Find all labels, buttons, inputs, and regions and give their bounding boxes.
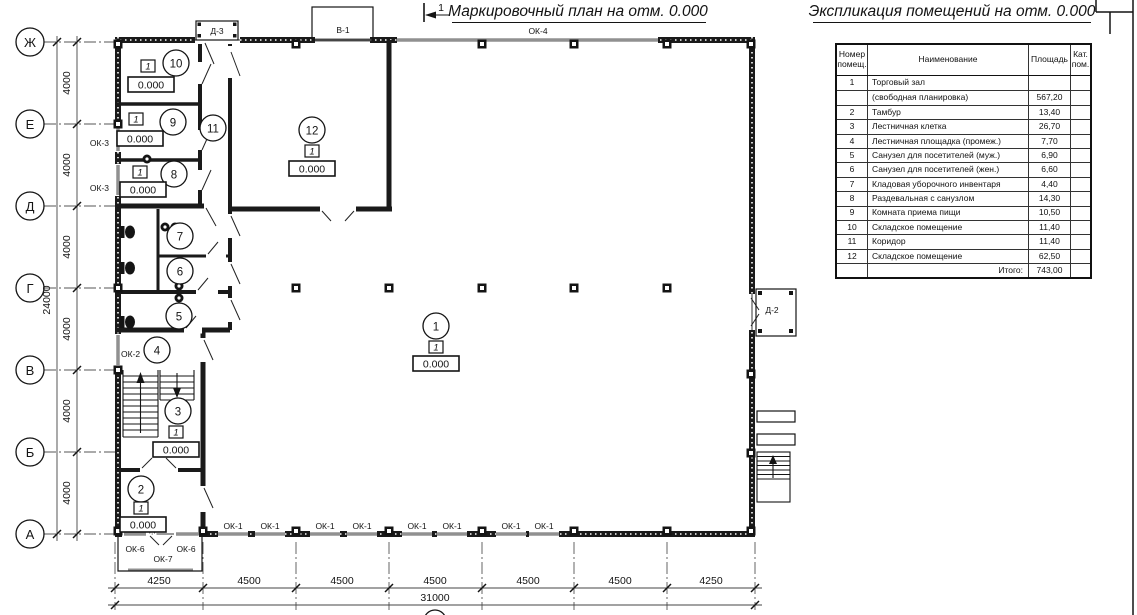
cell-name: Тамбур <box>867 106 1028 119</box>
room-marker-6: 6 <box>167 258 193 284</box>
cell-name: Коридор <box>867 235 1028 248</box>
cell-name: Санузел для посетителей (муж.) <box>867 149 1028 162</box>
cell-area: 6,60 <box>1028 163 1070 176</box>
cell-area: 11,40 <box>1028 221 1070 234</box>
header-name: Наименование <box>867 45 1028 75</box>
header-room-number: Номер помещ. <box>837 45 867 75</box>
table-row: 4 Лестничная площадка (промеж.) 7,70 <box>837 134 1090 148</box>
cell-area <box>1028 76 1070 90</box>
cell-num <box>837 91 867 104</box>
room-marker-5: 5 <box>166 303 192 329</box>
stair-up-arrow-icon <box>137 372 145 383</box>
cell-num <box>837 264 867 277</box>
window-label-ok1: ОК-1 <box>442 521 461 531</box>
cell-total-area: 743,00 <box>1028 264 1070 277</box>
room-marker-3: 3 1 0.000 <box>153 398 199 457</box>
window-label-ok7: ОК-7 <box>153 554 172 564</box>
table-row: (свободная планировка) 567,20 <box>837 90 1090 104</box>
section-marker: 1 <box>424 2 449 22</box>
dimensions-left: 4000 4000 4000 4000 4000 4000 24000 <box>41 36 81 541</box>
dim-4000-1: 4000 <box>61 71 73 95</box>
room-marker-12: 12 1 0.000 <box>289 117 335 176</box>
cell-name: (свободная планировка) <box>867 91 1028 104</box>
table-row: 7 Кладовая уборочного инвентаря 4,40 <box>837 177 1090 191</box>
toilet-icon <box>120 316 125 328</box>
window-label-ok3: ОК-3 <box>90 183 109 193</box>
window-label-ok1: ОК-1 <box>501 521 520 531</box>
elevation-mark: 0.000 <box>127 134 153 146</box>
table-header-row: Номер помещ. Наименование Площадь Кат. п… <box>837 45 1090 76</box>
table-row: 12 Складское помещение 62,50 <box>837 249 1090 263</box>
floor-type-mark: 1 <box>173 428 178 439</box>
dim-4000-5: 4000 <box>61 399 73 423</box>
table-title: Экспликация помещений на отм. 0.000 <box>809 3 1096 20</box>
cell-name: Торговый зал <box>867 76 1028 90</box>
floor-type-mark: 1 <box>309 147 314 158</box>
cell-category <box>1070 149 1090 162</box>
gate-v1-porch <box>312 7 373 40</box>
cell-total-label: Итого: <box>867 264 1028 277</box>
cell-name: Комната приема пищи <box>867 207 1028 220</box>
porches <box>118 7 796 571</box>
cell-num: 1 <box>837 76 867 90</box>
dim-4500-5: 4500 <box>608 575 632 587</box>
toilet-icon <box>120 262 125 274</box>
room-marker-8: 8 1 0.000 <box>120 161 187 197</box>
room-number: 4 <box>154 346 161 358</box>
elevation-mark: 0.000 <box>130 520 156 532</box>
door-sills <box>148 40 752 534</box>
dim-4500-2: 4500 <box>330 575 354 587</box>
table-row: 1 Торговый зал <box>837 76 1090 90</box>
cell-area: 14,30 <box>1028 192 1070 205</box>
wall-texture <box>115 37 755 537</box>
cell-name: Раздевальная с санузлом <box>867 192 1028 205</box>
table-row: 9 Комната приема пищи 10,50 <box>837 206 1090 220</box>
door-label-d2: Д-2 <box>765 305 779 315</box>
table-row: 3 Лестничная клетка 26,70 <box>837 119 1090 133</box>
axis-letter-zh: Ж <box>24 35 36 50</box>
floor-type-mark: 1 <box>145 62 150 73</box>
cell-area: 4,40 <box>1028 178 1070 191</box>
table-row: 2 Тамбур 13,40 <box>837 105 1090 119</box>
door-leaves <box>142 43 759 545</box>
cell-name: Санузел для посетителей (жен.) <box>867 163 1028 176</box>
cell-category <box>1070 178 1090 191</box>
table-row: 11 Коридор 11,40 <box>837 234 1090 248</box>
room-number: 3 <box>175 407 181 419</box>
cell-num: 7 <box>837 178 867 191</box>
cell-num: 5 <box>837 149 867 162</box>
dim-4250-left: 4250 <box>147 575 171 587</box>
floor-type-mark: 1 <box>138 504 143 515</box>
header-area: Площадь <box>1028 45 1070 75</box>
elevation-mark: 0.000 <box>163 445 189 457</box>
window-label-ok6: ОК-6 <box>176 544 195 554</box>
dim-4500-3: 4500 <box>423 575 447 587</box>
cell-num: 10 <box>837 221 867 234</box>
exterior-stair <box>757 452 790 502</box>
cell-category <box>1070 250 1090 263</box>
axis-letter-d: Д <box>26 199 35 214</box>
floor-type-mark: 1 <box>137 168 142 179</box>
dim-4000-4: 4000 <box>61 317 73 341</box>
window-label-ok1: ОК-1 <box>534 521 553 531</box>
room-number: 1 <box>433 322 439 334</box>
room-number: 2 <box>138 485 144 497</box>
cell-area: 6,90 <box>1028 149 1070 162</box>
cell-num: 9 <box>837 207 867 220</box>
room-marker-10: 10 1 0.000 <box>128 50 189 92</box>
cell-name: Лестничная клетка <box>867 120 1028 133</box>
drawing-sheet: { "page": { "plan_title": "Маркировочный… <box>0 0 1137 615</box>
room-number: 6 <box>177 267 183 279</box>
room-marker-1: 1 1 0.000 <box>413 313 459 371</box>
cell-category <box>1070 135 1090 148</box>
cell-area: 26,70 <box>1028 120 1070 133</box>
dim-24000-total: 24000 <box>41 285 53 314</box>
section-marker-number: 1 <box>438 2 444 14</box>
cell-area: 7,70 <box>1028 135 1070 148</box>
dim-4500-1: 4500 <box>237 575 261 587</box>
cell-num: 11 <box>837 235 867 248</box>
window-label-ok1: ОК-1 <box>260 521 279 531</box>
room-number: 9 <box>170 118 176 130</box>
cell-category <box>1070 192 1090 205</box>
cell-category <box>1070 120 1090 133</box>
gate-label-v1: В-1 <box>336 25 350 35</box>
plan-title-block: Маркировочный план на отм. 0.000 1 <box>424 2 708 23</box>
toilet-icon <box>120 226 125 238</box>
axis-letter-b: Б <box>26 445 35 460</box>
table-row: 5 Санузел для посетителей (муж.) 6,90 <box>837 148 1090 162</box>
dim-4250-right: 4250 <box>699 575 723 587</box>
room-marker-11: 11 <box>200 115 226 141</box>
window-label-ok6: ОК-6 <box>125 544 144 554</box>
room-number: 11 <box>207 124 219 136</box>
table-row: 8 Раздевальная с санузлом 14,30 <box>837 191 1090 205</box>
header-category: Кат. пом. <box>1070 45 1090 75</box>
cell-category <box>1070 221 1090 234</box>
cell-name: Складское помещение <box>867 250 1028 263</box>
elevation-mark: 0.000 <box>423 359 449 371</box>
sheet-frame <box>1096 0 1133 615</box>
cell-num: 8 <box>837 192 867 205</box>
cell-category <box>1070 264 1090 277</box>
room-explication-table: Номер помещ. Наименование Площадь Кат. п… <box>835 43 1092 279</box>
cell-name: Кладовая уборочного инвентаря <box>867 178 1028 191</box>
axis-letter-e: Е <box>26 117 35 132</box>
room-number: 8 <box>171 170 177 182</box>
cell-category <box>1070 106 1090 119</box>
table-total-row: Итого: 743,00 <box>837 263 1090 277</box>
cell-num: 12 <box>837 250 867 263</box>
dim-4000-3: 4000 <box>61 235 73 259</box>
window-label-ok1: ОК-1 <box>315 521 334 531</box>
exterior-walls <box>115 37 755 537</box>
elevation-mark: 0.000 <box>299 164 325 176</box>
window-label-ok1: ОК-1 <box>223 521 242 531</box>
floor-type-mark: 1 <box>433 343 438 354</box>
interior-walls <box>115 40 392 537</box>
columns <box>114 40 756 536</box>
table-row: 6 Санузел для посетителей (жен.) 6,60 <box>837 162 1090 176</box>
cell-name: Складское помещение <box>867 221 1028 234</box>
window-label-ok1: ОК-1 <box>407 521 426 531</box>
cell-category <box>1070 235 1090 248</box>
floor-type-mark: 1 <box>133 115 138 126</box>
axis-letter-g: Г <box>26 281 33 296</box>
section-arrow-icon <box>425 12 436 19</box>
room-number: 10 <box>170 59 183 71</box>
window-label-ok2: ОК-2 <box>121 349 140 359</box>
room-marker-7: 7 <box>167 223 193 249</box>
stair-down-arrow-icon <box>173 388 181 398</box>
window-label-ok4: ОК-4 <box>528 26 547 36</box>
window-label-ok3: ОК-3 <box>90 138 109 148</box>
loading-platform-1 <box>757 411 795 422</box>
table-title-block: Экспликация помещений на отм. 0.000 <box>809 3 1096 23</box>
room-marker-4: 4 <box>144 337 170 363</box>
plan-title: Маркировочный план на отм. 0.000 <box>448 3 708 20</box>
room-number: 7 <box>177 232 183 244</box>
dim-31000-total: 31000 <box>420 592 449 604</box>
cell-num: 2 <box>837 106 867 119</box>
table-row: 10 Складское помещение 11,40 <box>837 220 1090 234</box>
cell-area: 62,50 <box>1028 250 1070 263</box>
door-label-d3: Д-3 <box>210 26 224 36</box>
wall-openings <box>118 40 752 534</box>
dim-4000-2: 4000 <box>61 153 73 177</box>
dim-4500-4: 4500 <box>516 575 540 587</box>
axis-letter-a: А <box>26 527 35 542</box>
cell-name: Лестничная площадка (промеж.) <box>867 135 1028 148</box>
dimensions-bottom: 4250 4500 4500 4500 4500 4500 4250 31000 <box>108 542 762 610</box>
room-marker-2: 2 1 0.000 <box>120 476 166 532</box>
cell-area: 13,40 <box>1028 106 1070 119</box>
cell-area: 11,40 <box>1028 235 1070 248</box>
opening-labels: ОК-4 ОК-3 ОК-3 ОК-2 ОК-1 ОК-1 ОК-1 ОК-1 … <box>90 25 779 564</box>
cell-category <box>1070 207 1090 220</box>
cell-num: 6 <box>837 163 867 176</box>
room-marker-9: 9 1 0.000 <box>117 109 186 146</box>
loading-platform-2 <box>757 434 795 445</box>
cell-category <box>1070 76 1090 90</box>
cell-num: 4 <box>837 135 867 148</box>
cell-area: 10,50 <box>1028 207 1070 220</box>
cell-area: 567,20 <box>1028 91 1070 104</box>
elevation-mark: 0.000 <box>138 80 164 92</box>
window-label-ok1: ОК-1 <box>352 521 371 531</box>
cell-category <box>1070 91 1090 104</box>
dim-4000-6: 4000 <box>61 481 73 505</box>
room-number: 12 <box>306 126 319 138</box>
cell-num: 3 <box>837 120 867 133</box>
elevation-mark: 0.000 <box>130 185 156 197</box>
room-number: 5 <box>176 312 182 324</box>
axis-letter-v: В <box>26 363 35 378</box>
cell-category <box>1070 163 1090 176</box>
